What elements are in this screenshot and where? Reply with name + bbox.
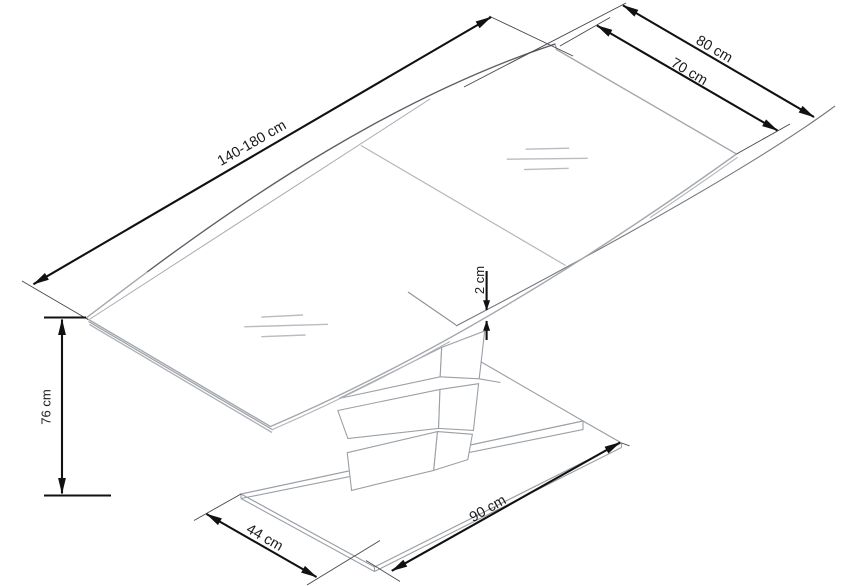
svg-text:2 cm: 2 cm — [472, 266, 487, 294]
svg-text:76 cm: 76 cm — [39, 389, 54, 424]
